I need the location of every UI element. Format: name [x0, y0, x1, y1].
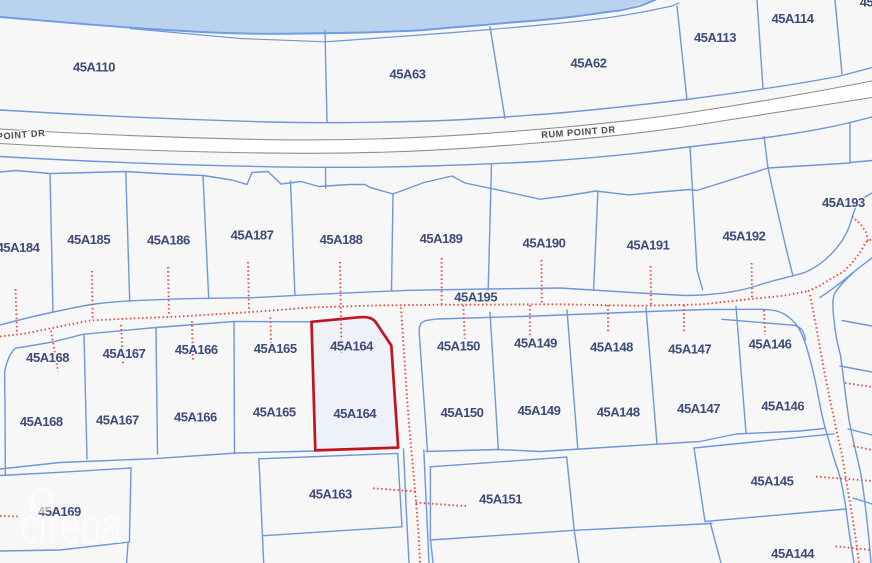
svg-text:45A186: 45A186	[147, 233, 190, 248]
svg-text:45A150: 45A150	[441, 405, 484, 420]
svg-text:45A187: 45A187	[231, 228, 274, 243]
svg-text:45A149: 45A149	[514, 336, 557, 351]
svg-text:45A150: 45A150	[437, 339, 480, 354]
svg-text:45A146: 45A146	[749, 336, 792, 351]
svg-text:45A163: 45A163	[309, 487, 352, 502]
svg-text:45A164: 45A164	[333, 406, 377, 421]
svg-text:45A188: 45A188	[320, 232, 363, 247]
svg-text:45A185: 45A185	[67, 232, 110, 247]
svg-text:45A148: 45A148	[597, 405, 640, 420]
svg-text:45A165: 45A165	[254, 341, 297, 356]
svg-text:45A168: 45A168	[26, 350, 69, 365]
svg-text:45A147: 45A147	[668, 341, 711, 356]
svg-text:45A191: 45A191	[627, 238, 670, 253]
svg-text:45A193: 45A193	[822, 195, 865, 210]
svg-text:45A62: 45A62	[570, 56, 606, 71]
svg-text:45A149: 45A149	[518, 403, 561, 418]
svg-text:45A184: 45A184	[0, 240, 41, 255]
svg-text:45A63: 45A63	[389, 67, 425, 82]
svg-text:45A195: 45A195	[454, 290, 497, 305]
svg-text:45A114: 45A114	[771, 11, 814, 26]
svg-text:45A113: 45A113	[694, 30, 736, 45]
svg-text:45A146: 45A146	[761, 398, 804, 413]
svg-text:45: 45	[860, 0, 872, 10]
svg-text:45A148: 45A148	[590, 340, 633, 355]
svg-text:cireba: cireba	[20, 497, 122, 555]
svg-text:45A147: 45A147	[677, 401, 720, 416]
svg-text:45A166: 45A166	[174, 410, 217, 425]
svg-text:45A110: 45A110	[73, 60, 115, 75]
svg-text:45A164: 45A164	[330, 339, 374, 354]
svg-text:45A192: 45A192	[723, 229, 766, 244]
svg-text:45A189: 45A189	[420, 231, 463, 246]
svg-text:45A145: 45A145	[751, 473, 794, 488]
svg-text:45A151: 45A151	[479, 492, 522, 507]
svg-text:45A166: 45A166	[175, 342, 218, 357]
svg-text:45A144: 45A144	[771, 546, 815, 561]
svg-text:45A165: 45A165	[253, 404, 296, 419]
svg-text:45A167: 45A167	[96, 412, 139, 427]
svg-text:45A190: 45A190	[523, 236, 566, 251]
svg-text:45A168: 45A168	[20, 414, 63, 429]
svg-text:45A167: 45A167	[103, 346, 146, 361]
